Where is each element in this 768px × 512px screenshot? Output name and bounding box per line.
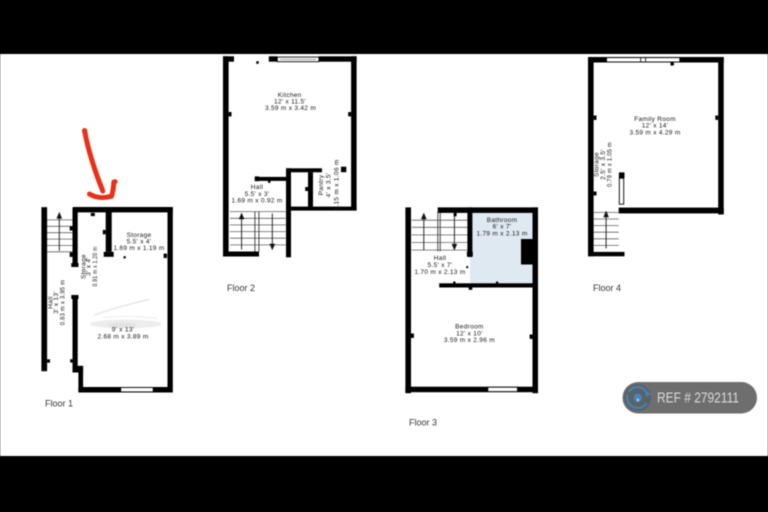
- svg-text:3.59 m x 2.96 m: 3.59 m x 2.96 m: [444, 337, 495, 344]
- svg-text:1.79 m x 2.13 m: 1.79 m x 2.13 m: [476, 230, 527, 237]
- svg-text:2.68 m x 3.89 m: 2.68 m x 3.89 m: [97, 334, 148, 341]
- svg-text:0.79 m x 1.05 m: 0.79 m x 1.05 m: [607, 142, 614, 187]
- svg-text:1.69 m x 1.19 m: 1.69 m x 1.19 m: [113, 245, 164, 252]
- svg-text:Floor 4: Floor 4: [593, 283, 621, 293]
- svg-text:1.69 m x 0.92 m: 1.69 m x 0.92 m: [231, 198, 282, 205]
- svg-text:Pantry: Pantry: [318, 174, 325, 195]
- svg-text:5.5' x 7': 5.5' x 7': [428, 262, 453, 269]
- svg-text:9' x 13': 9' x 13': [112, 327, 135, 334]
- svg-text:Floor 2: Floor 2: [227, 283, 255, 293]
- svg-text:Hall: Hall: [251, 184, 264, 191]
- svg-text:Hall: Hall: [434, 255, 447, 262]
- svg-text:3.59 m x 4.29 m: 3.59 m x 4.29 m: [629, 129, 680, 136]
- svg-text:Floor 1: Floor 1: [45, 399, 73, 409]
- svg-text:1.15 m x 1.06 m: 1.15 m x 1.06 m: [333, 159, 340, 210]
- svg-text:1.70 m x 2.13 m: 1.70 m x 2.13 m: [414, 269, 465, 276]
- svg-text:REF # 2792111: REF # 2792111: [657, 390, 739, 407]
- svg-text:Bedroom: Bedroom: [455, 324, 483, 331]
- svg-text:0.91 m x 1.20 m: 0.91 m x 1.20 m: [92, 247, 99, 287]
- svg-text:4' x 3.5': 4' x 3.5': [326, 173, 333, 198]
- svg-text:Floor 3: Floor 3: [409, 418, 437, 428]
- svg-text:3.59 m x 3.42 m: 3.59 m x 3.42 m: [265, 105, 316, 112]
- svg-text:0.83 m x 3.95 m: 0.83 m x 3.95 m: [59, 280, 66, 326]
